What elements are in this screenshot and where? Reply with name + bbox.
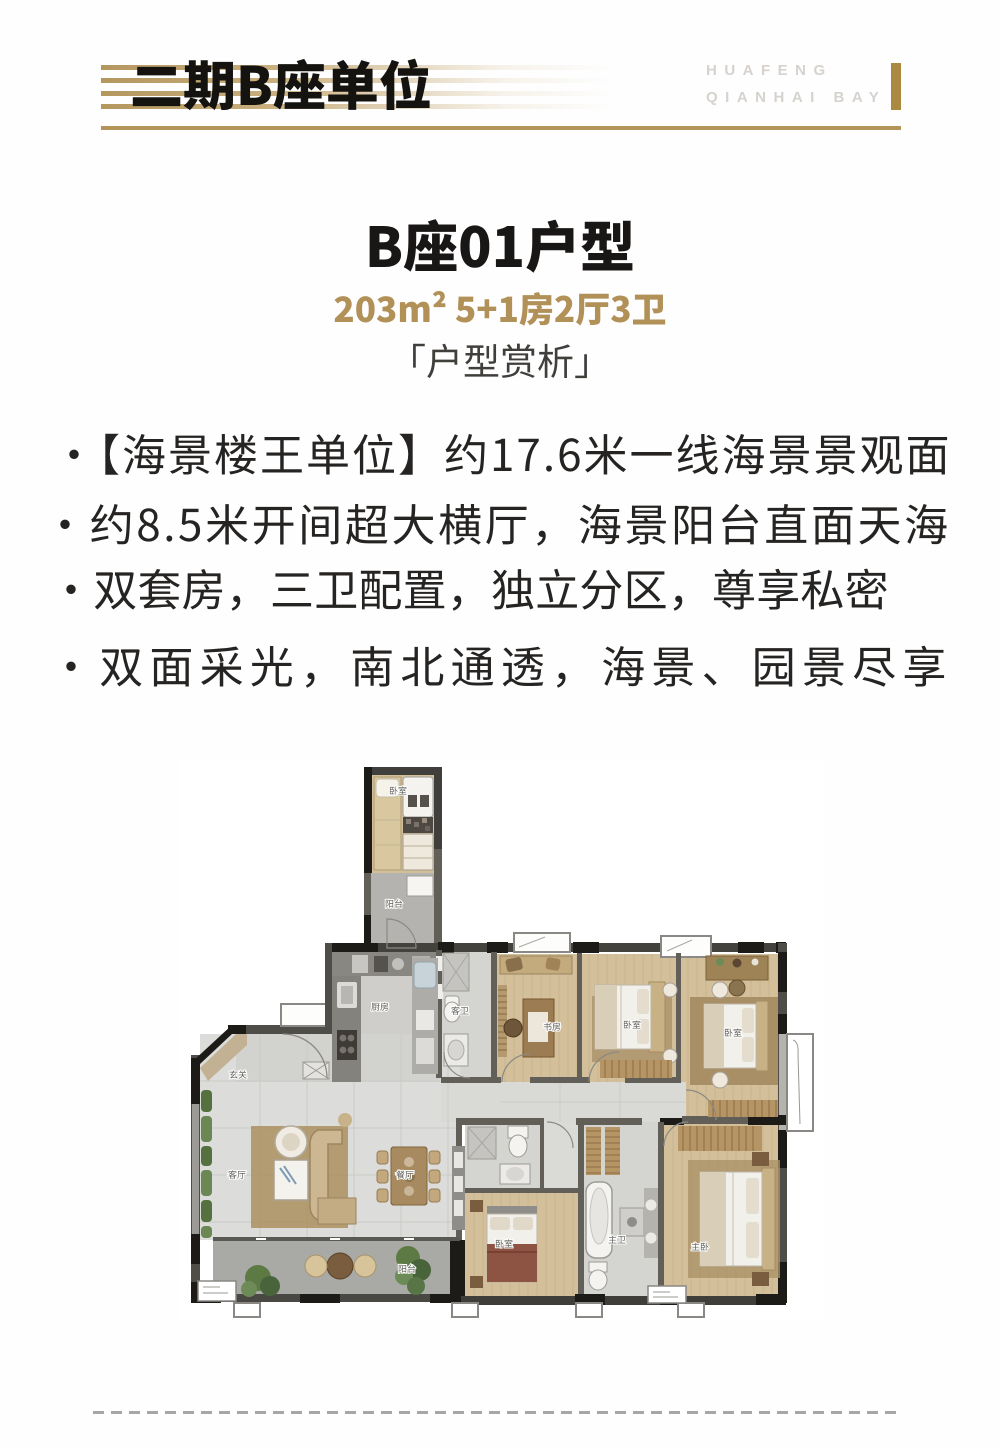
svg-text:卧室: 卧室 [623,1018,641,1031]
svg-text:玄关: 玄关 [229,1068,247,1081]
svg-text:客厅: 客厅 [228,1168,246,1181]
svg-text:阳台: 阳台 [385,897,403,910]
svg-text:主卧: 主卧 [691,1240,709,1253]
svg-text:餐厅: 餐厅 [396,1168,414,1181]
svg-text:主卫: 主卫 [608,1233,626,1246]
svg-text:客卫: 客卫 [451,1004,469,1017]
svg-text:厨房: 厨房 [371,1000,389,1013]
svg-text:书房: 书房 [543,1020,561,1033]
svg-text:阳台: 阳台 [398,1262,416,1275]
svg-text:卧室: 卧室 [495,1237,513,1250]
svg-text:卧室: 卧室 [724,1026,742,1039]
svg-text:卧室: 卧室 [389,784,407,797]
